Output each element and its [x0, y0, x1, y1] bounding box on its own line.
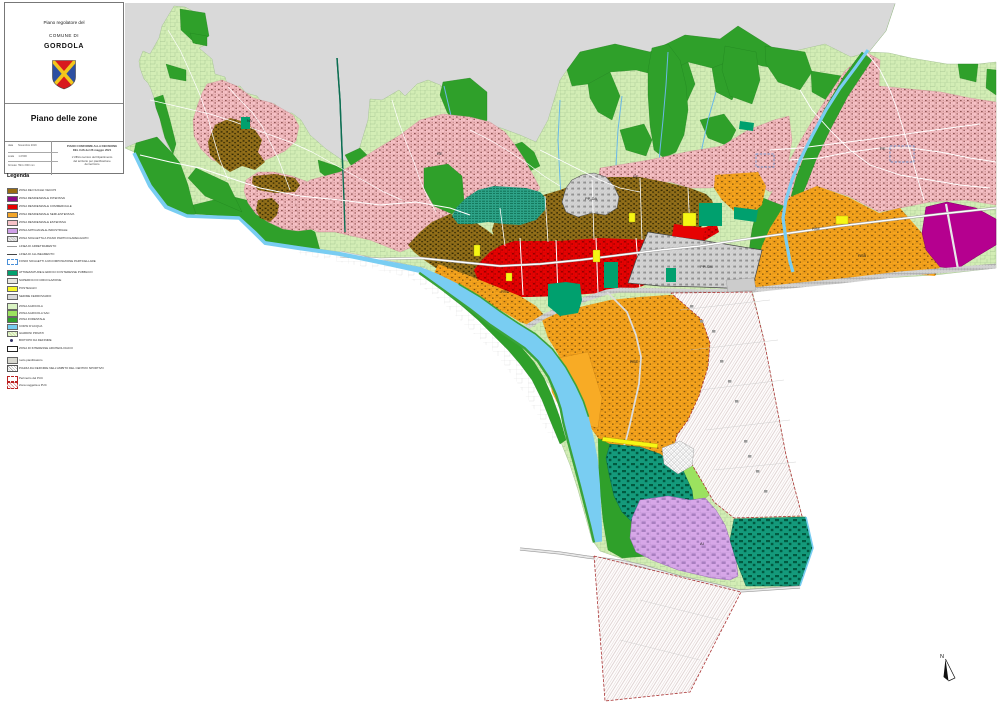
svg-text:RE: RE: [633, 174, 639, 179]
svg-text:RSB: RSB: [858, 253, 867, 258]
svg-text:RE: RE: [437, 151, 443, 156]
svg-text:RSE: RSE: [630, 359, 639, 364]
svg-text:RE: RE: [880, 146, 886, 151]
svg-text:AI: AI: [700, 541, 704, 546]
svg-text:PP-SM: PP-SM: [700, 264, 713, 269]
svg-text:RSC: RSC: [501, 289, 510, 294]
svg-text:NV: NV: [247, 118, 253, 123]
svg-text:N: N: [940, 654, 944, 660]
svg-text:PP-DA: PP-DA: [585, 196, 598, 201]
svg-text:RSE: RSE: [812, 226, 821, 231]
